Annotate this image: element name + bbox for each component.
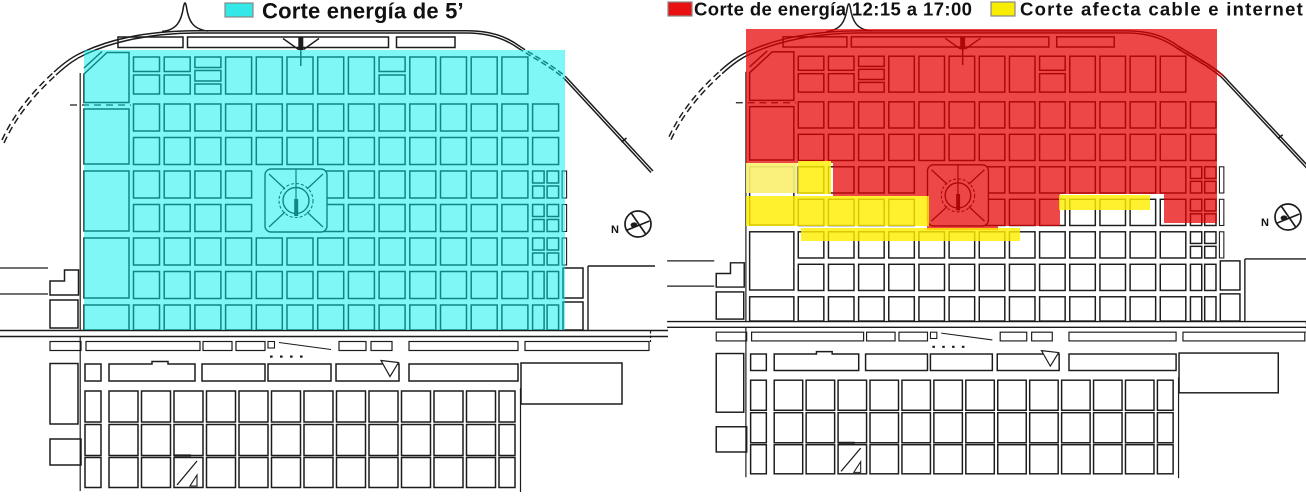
svg-text:N: N	[611, 224, 619, 236]
svg-text:Corte energía de 5’: Corte energía de 5’	[262, 0, 464, 24]
svg-text:Corte de energía 12:15 a 17:00: Corte de energía 12:15 a 17:00	[694, 0, 972, 20]
svg-text:N: N	[1261, 217, 1269, 229]
svg-text:Corte afecta cable e internet: Corte afecta cable e internet	[1020, 0, 1304, 20]
